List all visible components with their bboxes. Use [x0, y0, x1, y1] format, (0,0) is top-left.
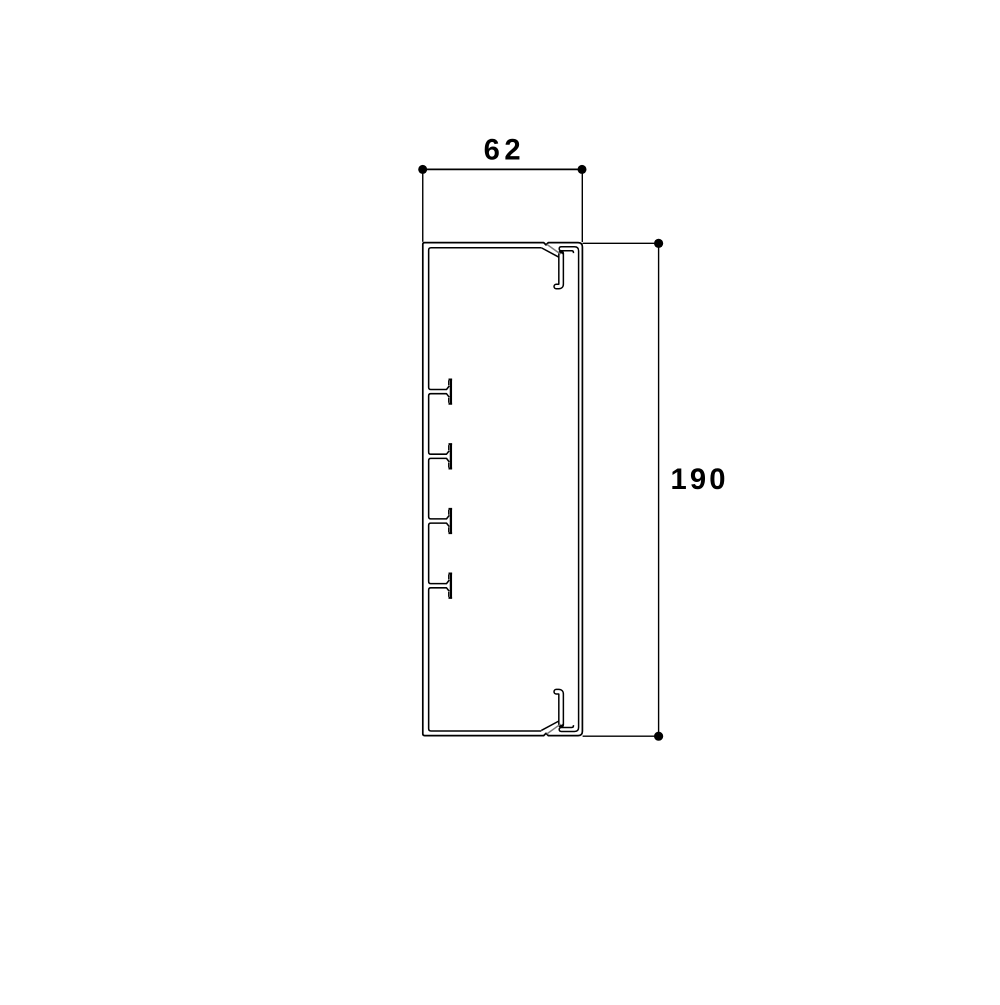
- svg-text:190: 190: [670, 464, 728, 496]
- svg-text:62: 62: [484, 135, 525, 167]
